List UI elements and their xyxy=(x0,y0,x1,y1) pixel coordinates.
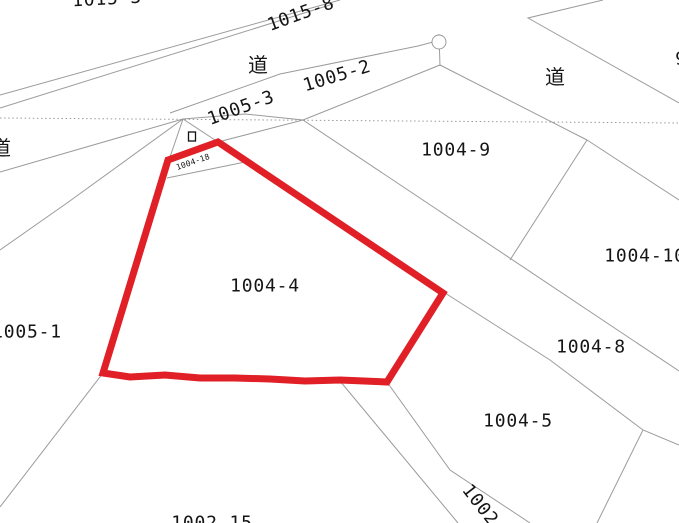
parcel-label-1002: 1002 xyxy=(457,480,502,523)
boundary-line xyxy=(0,119,183,172)
survey-marker-icon xyxy=(432,35,446,49)
parcel-label-1004-5: 1004-5 xyxy=(483,411,553,432)
parcel-label-1015-8: 1015-8 xyxy=(265,0,338,36)
boundary-line xyxy=(170,119,183,157)
cadastral-map-viewer: 1015-3 1015-8 道 1005-3 1005-2 道 道 9 1004… xyxy=(0,0,679,523)
dotted-reference-line xyxy=(0,118,679,123)
parcel-label-1005-3: 1005-3 xyxy=(205,86,278,130)
boundary-line xyxy=(0,373,103,507)
parcel-label-1004-8: 1004-8 xyxy=(556,337,626,358)
small-square-marker xyxy=(189,132,196,141)
boundary-line xyxy=(587,140,679,200)
parcel-label-1015-3: 1015-3 xyxy=(72,0,143,11)
boundary-line xyxy=(387,382,530,523)
parcel-label-edge-9: 9 xyxy=(675,49,679,70)
map-canvas: 1015-3 1015-8 道 1005-3 1005-2 道 道 9 1004… xyxy=(0,0,679,523)
parcel-label-1004-10: 1004-10 xyxy=(604,246,679,267)
boundary-line xyxy=(340,381,458,523)
road-label-left: 道 xyxy=(0,136,11,160)
road-label-right: 道 xyxy=(545,65,565,89)
selected-parcel-outline[interactable] xyxy=(103,142,443,382)
boundary-line xyxy=(218,120,303,142)
boundary-line xyxy=(597,430,643,523)
boundary-line xyxy=(510,140,587,260)
road-label-top: 道 xyxy=(248,53,268,77)
boundary-line xyxy=(0,119,183,250)
parcel-label-1005-2: 1005-2 xyxy=(301,56,374,96)
parcel-label-1002-15: 1002-15 xyxy=(171,513,252,523)
parcel-label-1005-1: 1005-1 xyxy=(0,322,62,343)
parcel-label-1004-4: 1004-4 xyxy=(230,276,300,297)
parcel-labels: 1015-3 1015-8 道 1005-3 1005-2 道 道 9 1004… xyxy=(0,0,679,523)
parcel-label-1004-9: 1004-9 xyxy=(421,140,491,161)
